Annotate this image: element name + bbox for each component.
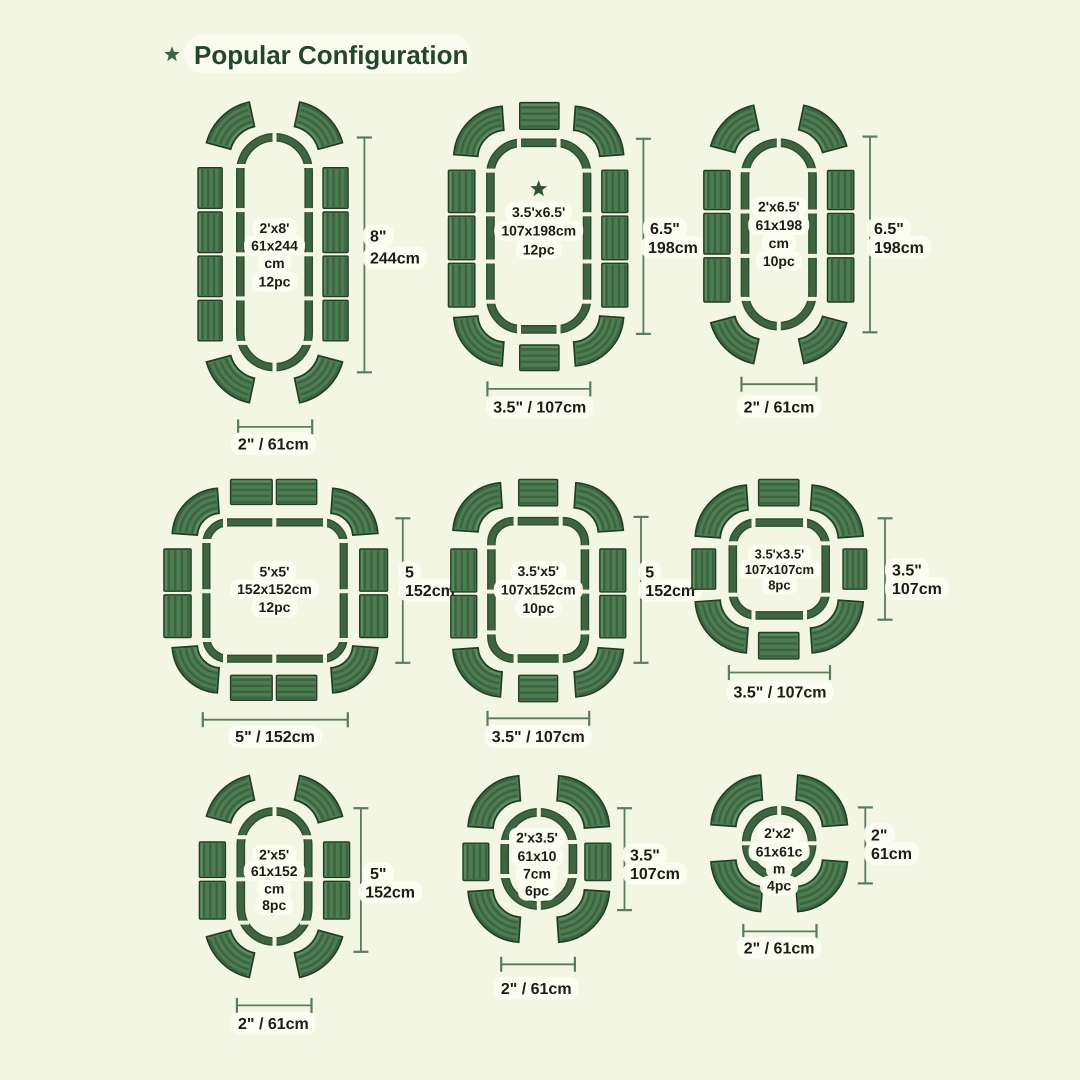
svg-text:152cm: 152cm xyxy=(365,885,415,902)
svg-text:61x61c: 61x61c xyxy=(756,843,803,859)
svg-text:cm: cm xyxy=(769,235,789,251)
svg-text:107cm: 107cm xyxy=(892,581,942,598)
svg-text:2'x3.5': 2'x3.5' xyxy=(516,830,558,846)
svg-text:3.5'x6.5': 3.5'x6.5' xyxy=(512,204,565,220)
svg-text:3.5" / 107cm: 3.5" / 107cm xyxy=(493,400,586,417)
svg-text:2" / 61cm: 2" / 61cm xyxy=(744,941,815,958)
svg-text:2" / 61cm: 2" / 61cm xyxy=(238,1016,309,1033)
svg-text:2'x6.5': 2'x6.5' xyxy=(758,199,800,215)
svg-text:61cm: 61cm xyxy=(871,846,912,863)
svg-text:3.5" / 107cm: 3.5" / 107cm xyxy=(734,685,827,702)
svg-text:6.5": 6.5" xyxy=(650,221,680,238)
svg-text:3.5'x3.5': 3.5'x3.5' xyxy=(755,547,805,562)
svg-text:7cm: 7cm xyxy=(523,865,551,881)
svg-text:61x198: 61x198 xyxy=(755,217,802,233)
svg-text:3.5" / 107cm: 3.5" / 107cm xyxy=(492,729,585,746)
svg-text:cm: cm xyxy=(264,880,284,896)
svg-text:3.5'x5': 3.5'x5' xyxy=(517,563,559,579)
svg-text:107cm: 107cm xyxy=(630,866,680,883)
svg-text:61x152: 61x152 xyxy=(251,863,298,879)
svg-text:2'x8': 2'x8' xyxy=(259,220,289,236)
svg-text:152cm: 152cm xyxy=(405,583,455,600)
svg-text:2" / 61cm: 2" / 61cm xyxy=(744,399,815,416)
svg-text:8pc: 8pc xyxy=(262,897,286,913)
svg-text:152cm: 152cm xyxy=(645,583,695,600)
svg-text:12pc: 12pc xyxy=(523,241,555,257)
svg-text:107x107cm: 107x107cm xyxy=(745,562,814,577)
svg-text:8pc: 8pc xyxy=(768,578,790,593)
svg-text:12pc: 12pc xyxy=(259,599,291,615)
svg-text:2" / 61cm: 2" / 61cm xyxy=(238,437,309,454)
svg-text:107x198cm: 107x198cm xyxy=(501,223,576,239)
svg-text:244cm: 244cm xyxy=(370,251,420,268)
svg-text:Popular Configuration: Popular Configuration xyxy=(194,40,468,70)
svg-text:5'x5': 5'x5' xyxy=(259,563,289,579)
svg-text:m: m xyxy=(773,861,785,877)
svg-text:198cm: 198cm xyxy=(874,240,924,257)
svg-text:10pc: 10pc xyxy=(763,253,795,269)
svg-text:61x10: 61x10 xyxy=(518,848,557,864)
svg-text:10pc: 10pc xyxy=(522,600,554,616)
svg-text:3.5": 3.5" xyxy=(630,847,660,864)
svg-text:107x152cm: 107x152cm xyxy=(501,582,576,598)
svg-text:8": 8" xyxy=(370,229,386,246)
svg-text:3.5": 3.5" xyxy=(892,563,922,580)
svg-text:12pc: 12pc xyxy=(259,274,291,290)
svg-text:198cm: 198cm xyxy=(648,240,698,257)
svg-text:5": 5" xyxy=(370,866,386,883)
svg-text:6.5": 6.5" xyxy=(874,221,904,238)
svg-text:61x244: 61x244 xyxy=(251,238,298,254)
svg-text:5" / 152cm: 5" / 152cm xyxy=(235,729,315,746)
svg-text:152x152cm: 152x152cm xyxy=(237,581,312,597)
svg-text:2'x5': 2'x5' xyxy=(259,847,289,863)
svg-text:cm: cm xyxy=(264,255,284,271)
svg-text:2": 2" xyxy=(871,827,887,844)
svg-text:6pc: 6pc xyxy=(525,883,549,899)
svg-text:2" / 61cm: 2" / 61cm xyxy=(501,981,572,998)
svg-text:2'x2': 2'x2' xyxy=(764,825,794,841)
svg-text:4pc: 4pc xyxy=(767,878,791,894)
